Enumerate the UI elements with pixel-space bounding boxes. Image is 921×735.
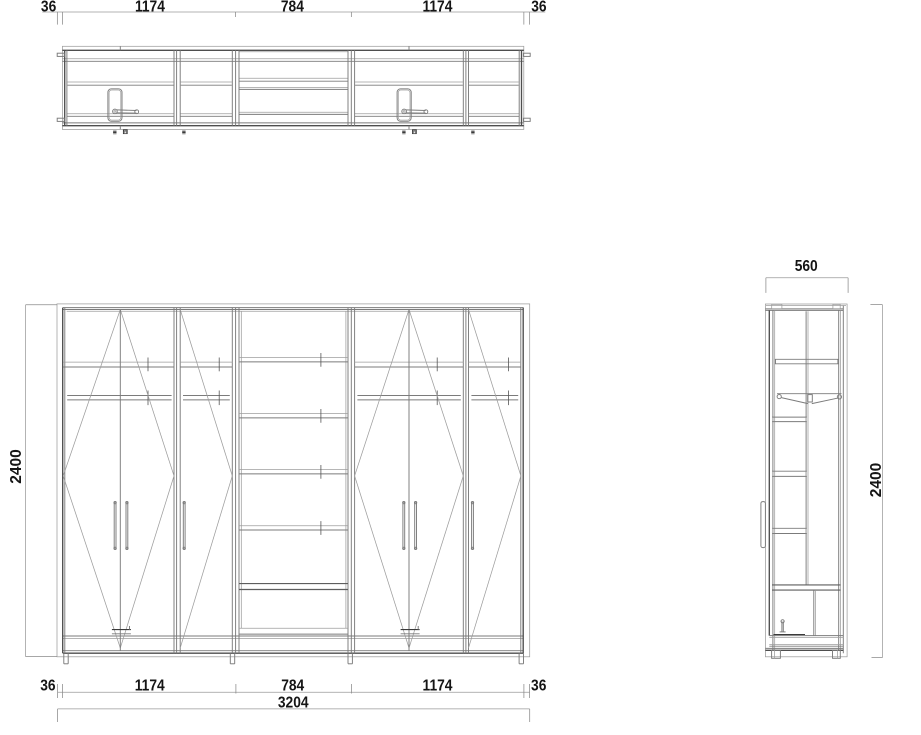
svg-text:2400: 2400 (8, 449, 25, 483)
svg-text:3204: 3204 (278, 695, 309, 712)
svg-text:36: 36 (40, 678, 55, 695)
svg-text:36: 36 (531, 0, 546, 16)
svg-text:784: 784 (281, 0, 305, 16)
svg-text:2400: 2400 (868, 463, 885, 497)
svg-text:560: 560 (795, 258, 818, 275)
svg-text:1174: 1174 (135, 678, 166, 695)
svg-text:36: 36 (531, 678, 546, 695)
svg-text:36: 36 (41, 0, 56, 16)
svg-text:784: 784 (281, 678, 305, 695)
svg-text:1174: 1174 (422, 0, 453, 16)
svg-text:1174: 1174 (135, 0, 166, 16)
svg-text:1174: 1174 (423, 678, 454, 695)
